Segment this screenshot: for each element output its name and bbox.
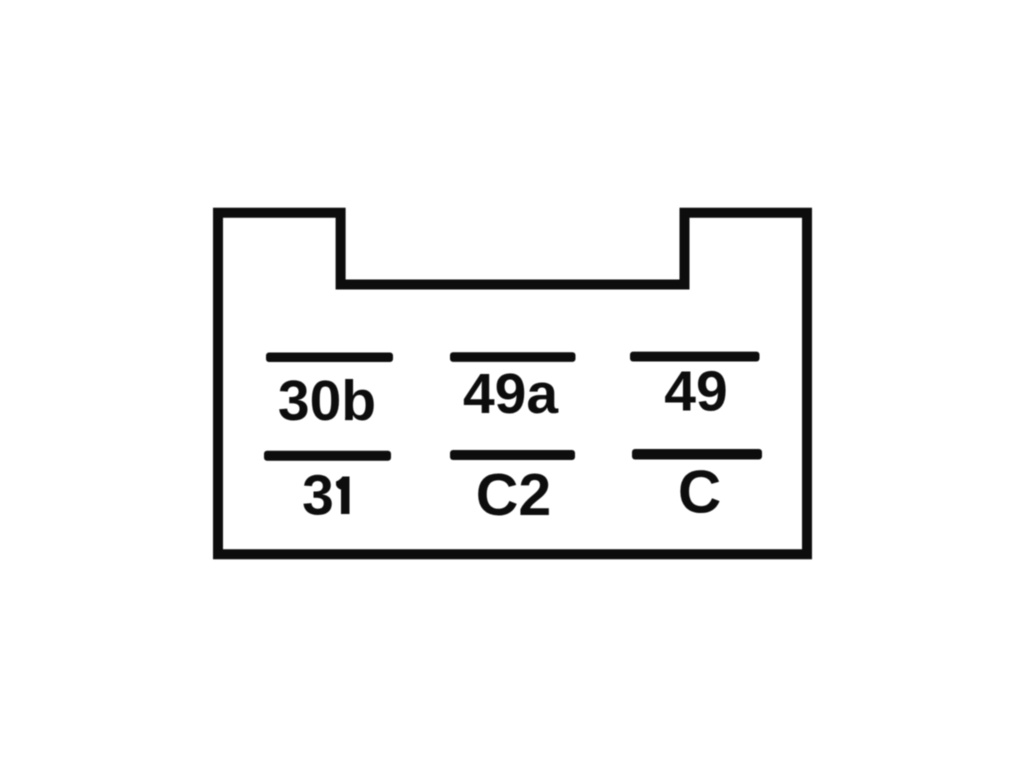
svg-text:3: 3 <box>302 464 334 528</box>
svg-text:C2: C2 <box>476 462 551 528</box>
svg-text:C: C <box>678 459 721 526</box>
svg-text:49a: 49a <box>463 362 559 426</box>
svg-text:49: 49 <box>664 360 727 424</box>
svg-text:30b: 30b <box>278 369 376 433</box>
